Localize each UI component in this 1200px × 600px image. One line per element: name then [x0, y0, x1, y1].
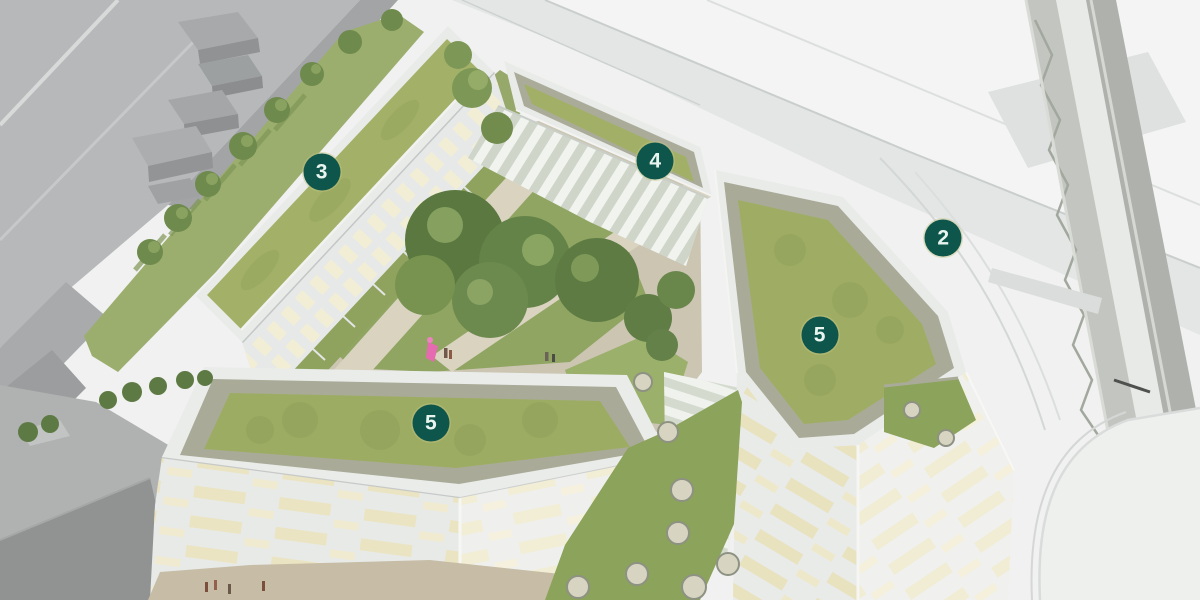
person-figure — [228, 584, 231, 594]
building-marker-label: 4 — [649, 150, 661, 171]
building-marker-label: 5 — [425, 413, 437, 434]
person-figure — [449, 350, 452, 359]
person-figure — [214, 580, 217, 590]
person-figure — [552, 354, 555, 362]
building-marker-label: 3 — [316, 161, 328, 182]
person-figure — [262, 581, 265, 591]
building-marker-5-south[interactable]: 5 — [412, 405, 449, 442]
building-marker-4[interactable]: 4 — [637, 142, 674, 179]
building-marker-5-east[interactable]: 5 — [801, 316, 838, 353]
building-marker-label: 5 — [814, 324, 826, 345]
person-figure — [444, 348, 448, 358]
person-figure — [545, 352, 549, 361]
building-marker-label: 2 — [937, 227, 949, 248]
rendered-scene — [0, 0, 1200, 600]
building-marker-3[interactable]: 3 — [303, 153, 340, 190]
person-figure — [205, 582, 208, 592]
building-marker-2[interactable]: 2 — [925, 219, 962, 256]
site-rendering: 3 4 2 5 5 — [0, 0, 1200, 600]
